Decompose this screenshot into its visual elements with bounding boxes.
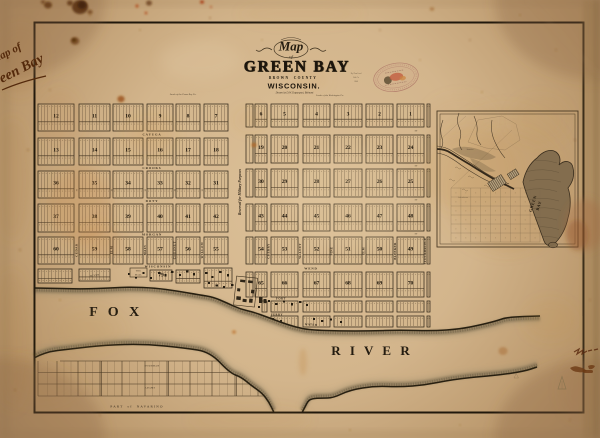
svg-text:18: 18 (213, 147, 219, 153)
svg-text:1: 1 (409, 112, 412, 118)
svg-text:48: 48 (408, 213, 414, 219)
svg-text:PINE: PINE (330, 247, 334, 256)
svg-text:ADAMS: ADAMS (145, 387, 156, 390)
svg-text:44: 44 (282, 213, 288, 219)
svg-text:56: 56 (185, 246, 191, 252)
svg-text:30: 30 (258, 179, 264, 185)
svg-text:69: 69 (377, 281, 383, 287)
svg-text:19: 19 (258, 145, 264, 151)
svg-text:70: 70 (408, 281, 414, 287)
svg-text:52: 52 (314, 246, 320, 252)
svg-text:17: 17 (185, 147, 191, 153)
svg-text:67: 67 (314, 281, 320, 287)
svg-text:65: 65 (258, 281, 264, 287)
svg-text:CHERRY: CHERRY (267, 243, 271, 259)
svg-text:5: 5 (283, 112, 286, 118)
svg-text:THE: THE (136, 271, 142, 273)
svg-text:Lands of the Washington Co.: Lands of the Washington Co. (315, 94, 344, 97)
svg-text:Lith Co: Lith Co (353, 77, 359, 79)
svg-text:FORT: FORT (276, 298, 286, 301)
svg-text:R I V E R: R I V E R (331, 343, 412, 358)
svg-text:49: 49 (408, 246, 414, 252)
svg-text:20: 20 (282, 145, 288, 151)
svg-text:53: 53 (282, 246, 288, 252)
svg-text:DOUSMAN: DOUSMAN (145, 365, 160, 368)
svg-text:Map: Map (278, 39, 304, 54)
svg-text:41: 41 (185, 214, 191, 220)
svg-text:Suamico: Suamico (467, 149, 474, 151)
svg-text:29: 29 (282, 179, 288, 185)
svg-text:4: 4 (315, 112, 318, 118)
svg-text:15: 15 (125, 147, 131, 153)
svg-text:WEND: WEND (304, 266, 318, 270)
svg-text:By Chas Lord: By Chas Lord (351, 73, 362, 75)
svg-text:CHESNUT: CHESNUT (173, 240, 177, 259)
svg-text:14: 14 (92, 147, 98, 153)
svg-text:WALNUT: WALNUT (298, 243, 302, 259)
svg-text:CEDAR: CEDAR (75, 243, 79, 257)
svg-text:55: 55 (213, 246, 219, 252)
svg-text:7: 7 (215, 113, 218, 119)
svg-text:PART of NAVARINO: PART of NAVARINO (110, 405, 163, 409)
svg-text:CROOKS: CROOKS (142, 166, 161, 170)
svg-text:68: 68 (345, 281, 351, 287)
svg-text:WILLOW: WILLOW (200, 241, 204, 258)
svg-text:40: 40 (157, 214, 163, 220)
svg-text:MAIN: MAIN (143, 244, 147, 255)
svg-text:21: 21 (314, 145, 320, 151)
svg-text:39: 39 (125, 214, 131, 220)
svg-text:DOTY: DOTY (146, 199, 159, 203)
svg-text:60: 60 (53, 246, 59, 252)
svg-text:STOCKBRIDGE: STOCKBRIDGE (423, 238, 427, 265)
svg-text:GREEN BAY: GREEN BAY (244, 59, 351, 76)
svg-text:50: 50 (377, 246, 383, 252)
svg-text:22: 22 (345, 145, 351, 151)
svg-text:31: 31 (213, 180, 219, 186)
svg-text:WISCONSIN: WISCONSIN (145, 264, 172, 268)
svg-text:8: 8 (187, 113, 190, 119)
svg-text:10: 10 (125, 113, 131, 119)
svg-text:54: 54 (258, 246, 264, 252)
svg-text:FERRY: FERRY (271, 314, 283, 317)
svg-text:WISCONSIN.: WISCONSIN. (268, 82, 321, 91)
svg-text:24: 24 (408, 145, 414, 151)
svg-text:43: 43 (258, 213, 264, 219)
svg-text:1846: 1846 (354, 81, 358, 83)
svg-text:33: 33 (157, 180, 163, 186)
svg-text:11: 11 (92, 113, 97, 119)
svg-text:66: 66 (282, 281, 288, 287)
svg-text:BROWN COUNTY: BROWN COUNTY (269, 76, 317, 80)
svg-text:32: 32 (185, 180, 191, 186)
svg-text:Drawn by D.W. Duparquet, Belmo: Drawn by D.W. Duparquet, Belmont (275, 92, 314, 95)
svg-text:58: 58 (125, 246, 131, 252)
svg-text:25: 25 (408, 179, 414, 185)
svg-text:42: 42 (213, 214, 219, 220)
svg-text:BLEEKER: BLEEKER (393, 242, 397, 260)
svg-text:MORGAN: MORGAN (142, 233, 162, 237)
svg-text:34: 34 (125, 180, 131, 186)
svg-text:57: 57 (157, 246, 163, 252)
svg-text:2: 2 (378, 112, 381, 118)
svg-text:3: 3 (347, 112, 350, 118)
svg-text:Reserved for Military Purposes: Reserved for Military Purposes (238, 168, 242, 215)
svg-text:Lands of the Green Bay Co.: Lands of the Green Bay Co. (169, 93, 197, 96)
svg-text:23: 23 (377, 145, 383, 151)
